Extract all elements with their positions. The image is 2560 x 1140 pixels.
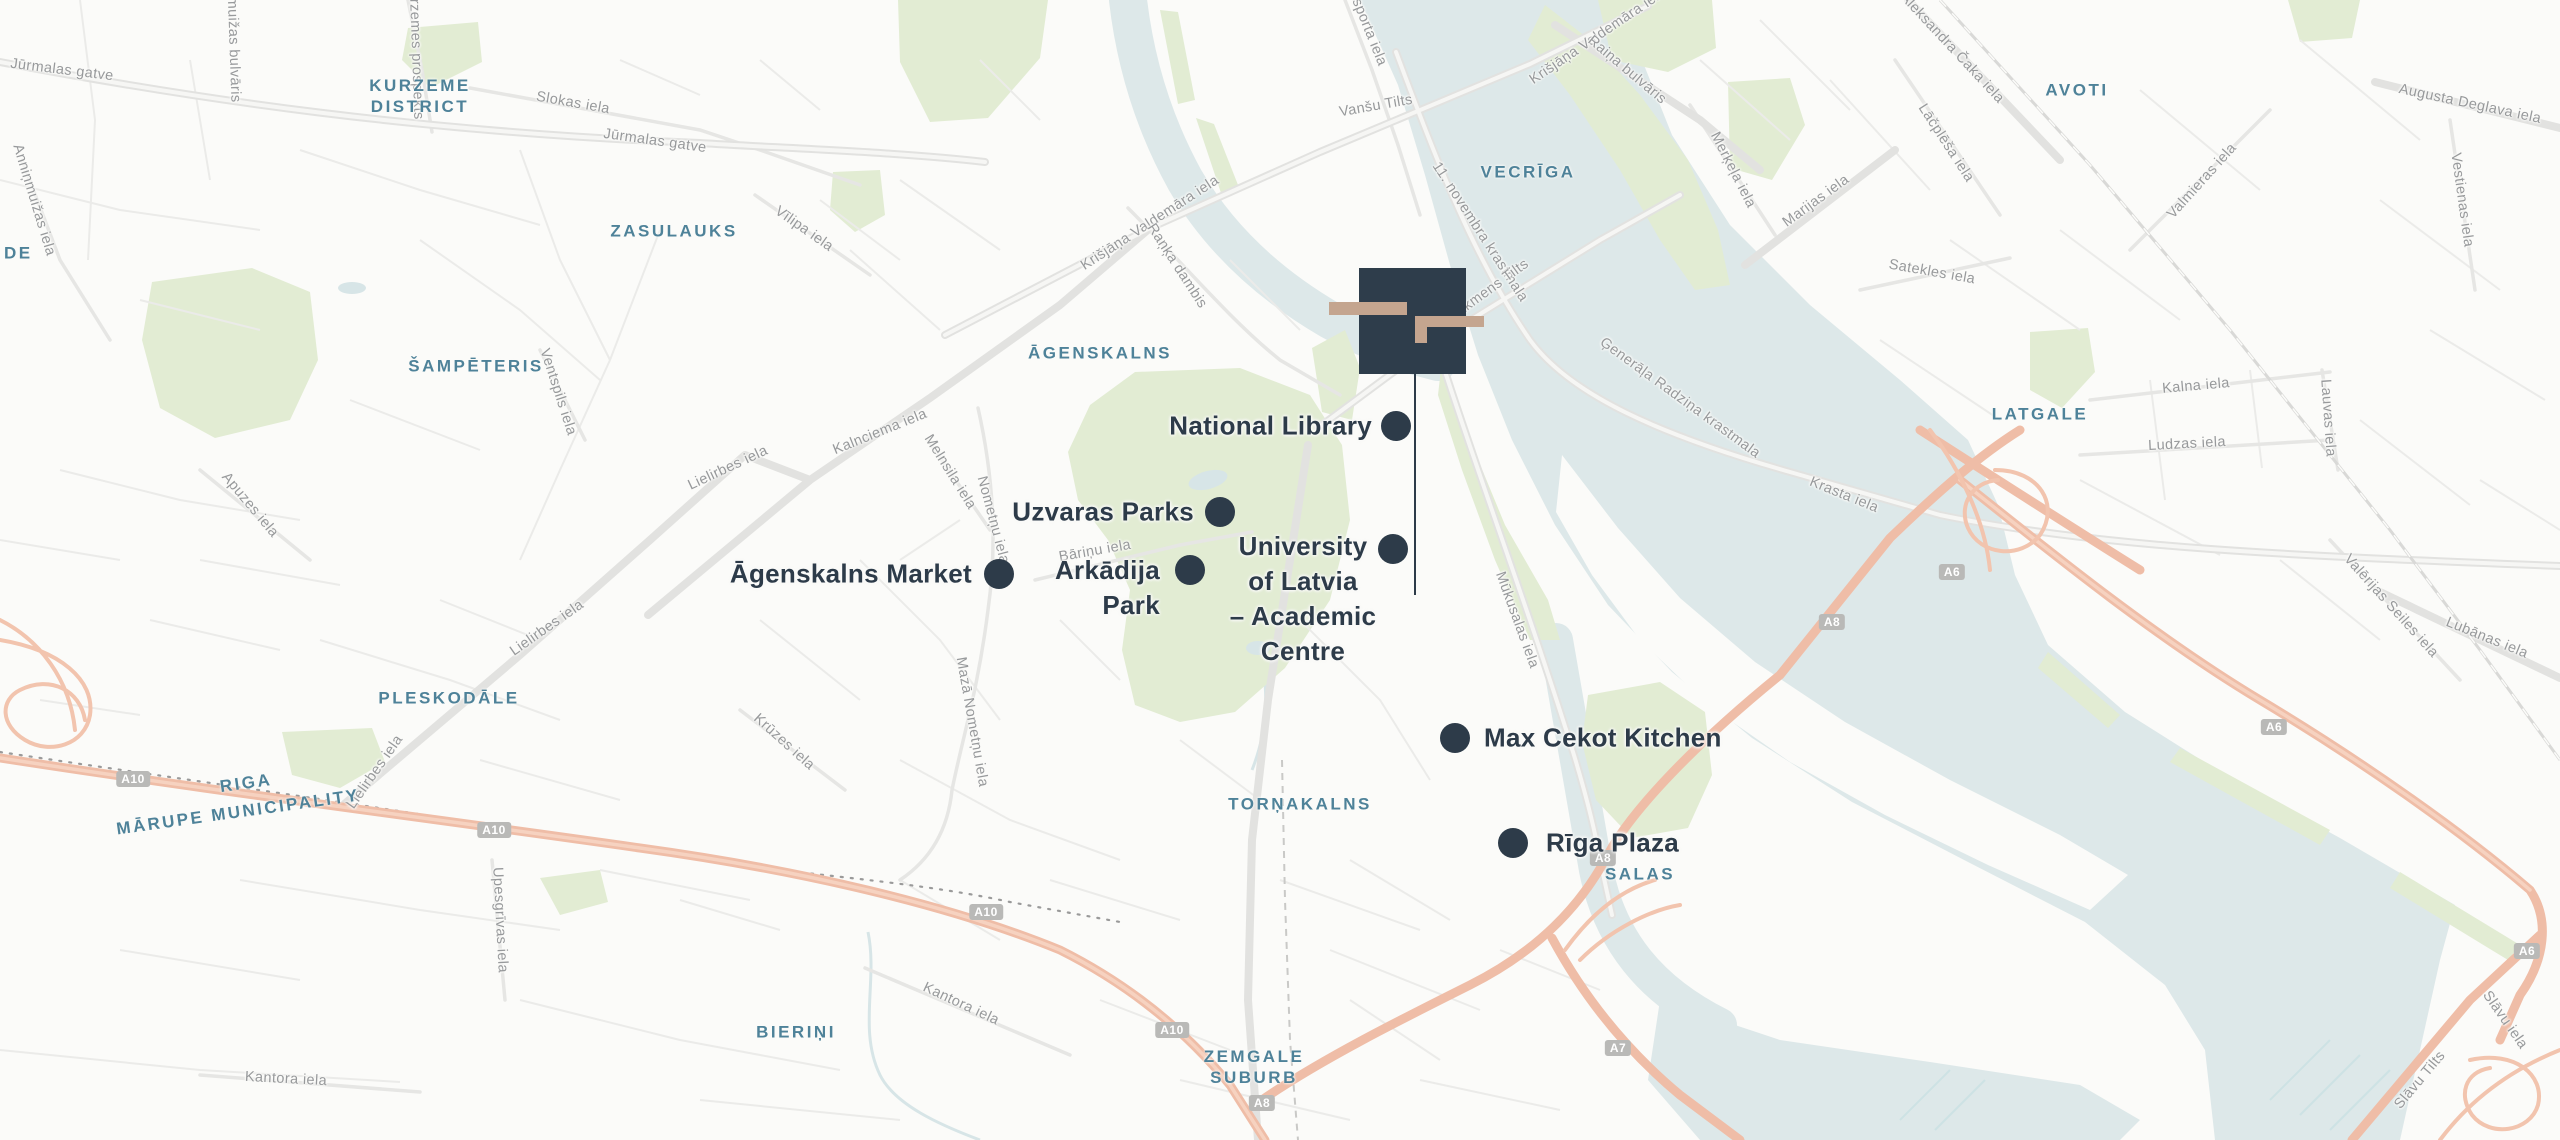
road-shield-a8: A8 (1819, 614, 1845, 630)
road-shield-a7: A7 (1605, 1040, 1631, 1056)
district-label: VECRĪGA (1481, 162, 1576, 183)
district-label: ŠAMPĒTERIS (408, 356, 544, 377)
district-label: LATGALE (1992, 404, 2089, 425)
road-shield-a6: A6 (1939, 564, 1965, 580)
district-label: SALAS (1605, 864, 1675, 885)
poi-dot-national-library[interactable] (1381, 411, 1411, 441)
road-shield-a10: A10 (116, 771, 150, 787)
district-label: PLESKODĀLE (378, 688, 519, 709)
district-label: ZASULAUKS (610, 221, 737, 242)
poi-dot-university-of-latvia[interactable] (1378, 534, 1408, 564)
road-shield-a10: A10 (1155, 1022, 1189, 1038)
poi-dot-agenskalns-market[interactable] (984, 559, 1014, 589)
road-shield-a10: A10 (477, 822, 511, 838)
district-label: KURZEME DISTRICT (369, 75, 471, 117)
poi-label-arkadija-park: Arkādija Park (1055, 553, 1160, 623)
poi-label-agenskalns-market: Āgenskalns Market (730, 557, 972, 592)
site-logo-bar-icon (1329, 302, 1407, 315)
riga-map: Jūrmalas gatveJūrmalas gatveSlokas ielaK… (0, 0, 2560, 1140)
poi-dot-arkadija-park[interactable] (1175, 555, 1205, 585)
site-logo-bar-icon (1415, 327, 1427, 343)
road-shield-a10: A10 (969, 904, 1003, 920)
road-shield-a6: A6 (2261, 719, 2287, 735)
poi-label-max-cekot-kitchen: Max Cekot Kitchen (1484, 721, 1722, 756)
road-shield-a8: A8 (1249, 1095, 1275, 1111)
district-label: TORŅAKALNS (1228, 794, 1372, 815)
road-shield-a6: A6 (2514, 943, 2540, 959)
poi-label-national-library: National Library (1169, 409, 1372, 444)
poi-dot-riga-plaza[interactable] (1498, 828, 1528, 858)
poi-label-university-of-latvia: University of Latvia – Academic Centre (1230, 529, 1377, 669)
district-label: ZEMGALE SUBURB (1204, 1046, 1305, 1088)
district-label: ĀGENSKALNS (1028, 343, 1172, 364)
district-label: AVOTI (2045, 80, 2108, 101)
poi-dot-max-cekot-kitchen[interactable] (1440, 723, 1470, 753)
district-label: BIERIŅI (756, 1022, 836, 1043)
site-logo-bar-icon (1415, 316, 1484, 327)
poi-label-riga-plaza: Rīga Plaza (1546, 826, 1679, 861)
poi-dot-uzvaras-parks[interactable] (1205, 497, 1235, 527)
district-label: DE (4, 243, 33, 264)
poi-label-uzvaras-parks: Uzvaras Parks (1012, 495, 1194, 530)
site-marker-leader-line (1414, 374, 1416, 595)
